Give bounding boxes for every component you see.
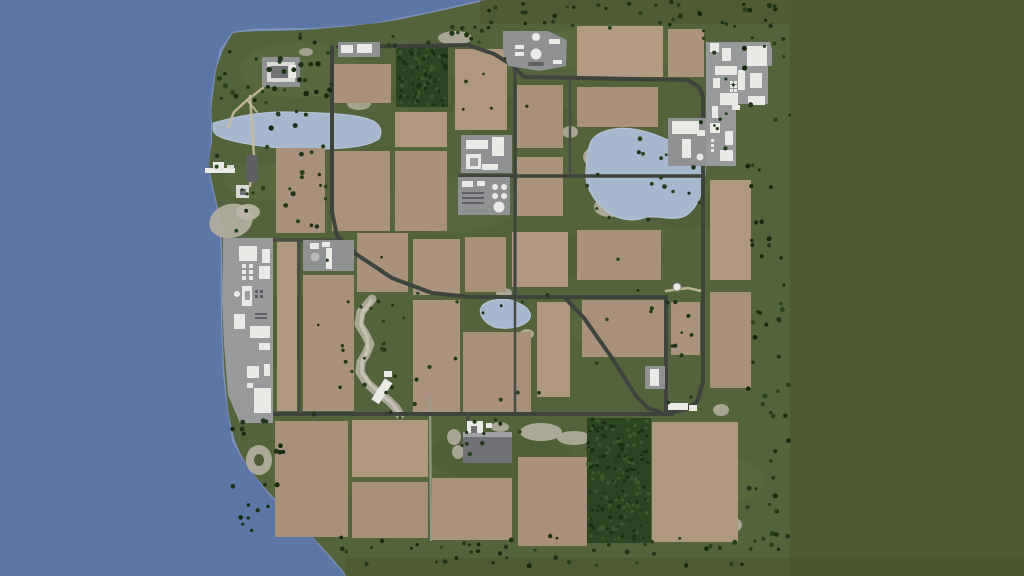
tree-icon	[760, 254, 764, 258]
tree-icon	[556, 537, 559, 540]
tree-icon	[498, 551, 502, 555]
tree-icon	[454, 357, 458, 361]
tree-icon	[775, 532, 779, 536]
tree-icon	[713, 124, 716, 127]
tree-icon	[324, 197, 327, 200]
forest-tree-icon	[433, 103, 436, 106]
forest-tree-icon	[625, 469, 629, 473]
forest-tree-icon	[635, 493, 638, 496]
forest-tree-icon	[621, 443, 624, 446]
field	[668, 29, 704, 77]
tree-icon	[315, 224, 319, 228]
forest-tree-icon	[639, 513, 641, 515]
forest-tree-icon	[598, 505, 600, 507]
tree-icon	[723, 146, 727, 150]
forest-tree-icon	[617, 537, 620, 540]
forest-tree-icon	[596, 419, 599, 422]
tree-icon	[761, 537, 765, 541]
tree-icon	[709, 544, 713, 548]
tree-icon	[344, 550, 348, 554]
tree-icon	[327, 87, 332, 92]
tree-icon	[283, 203, 288, 208]
industrial-b-tank	[492, 184, 498, 190]
tree-icon	[314, 90, 319, 95]
industrial-b-tank	[501, 184, 507, 190]
harbor-house	[262, 249, 270, 263]
tree-icon	[764, 323, 768, 327]
forest-tree-icon	[604, 427, 607, 430]
factory-shed	[549, 39, 560, 44]
tree-icon	[704, 546, 709, 551]
tree-icon	[595, 207, 598, 210]
tree-icon	[597, 3, 601, 7]
tree-icon	[719, 118, 722, 121]
forest-tree-icon	[636, 531, 639, 534]
field	[277, 239, 297, 411]
forest-tree-icon	[412, 83, 414, 85]
village-dot	[711, 139, 714, 142]
tree-icon	[753, 539, 756, 542]
tree-icon	[689, 395, 693, 399]
tree-icon	[494, 418, 497, 421]
tree-icon	[504, 545, 508, 549]
tree-icon	[732, 540, 737, 545]
tree-icon	[487, 26, 491, 30]
tree-icon	[551, 20, 554, 23]
tree-icon	[785, 534, 790, 539]
forest-tree-icon	[646, 420, 649, 423]
tree-icon	[272, 86, 277, 91]
harbor-dot	[249, 276, 253, 280]
tree-icon	[464, 80, 468, 84]
forest-tree-icon	[645, 426, 648, 429]
rock-outcrop	[236, 204, 260, 220]
field	[577, 87, 658, 127]
tree-icon	[234, 229, 238, 233]
tree-icon	[777, 355, 781, 359]
forest-tree-icon	[624, 515, 627, 518]
forest-tree-icon	[643, 537, 645, 539]
east-water-tank	[673, 283, 681, 291]
tree-icon	[469, 37, 473, 41]
tree-icon	[749, 547, 753, 551]
forest-tree-icon	[607, 446, 609, 448]
tree-icon	[415, 92, 418, 95]
tree-icon	[217, 76, 222, 81]
tree-icon	[697, 11, 701, 15]
tree-icon	[304, 113, 308, 117]
tree-icon	[669, 0, 673, 4]
field	[432, 478, 512, 540]
harbor-dot-dark	[255, 290, 258, 293]
forest-tree-icon	[610, 531, 613, 534]
tree-icon	[432, 80, 436, 84]
tree-icon	[770, 23, 773, 26]
forest-tree-icon	[401, 90, 403, 92]
tree-icon	[426, 41, 430, 45]
tree-icon	[498, 422, 502, 426]
tree-icon	[317, 324, 320, 327]
field	[352, 420, 428, 477]
forest-tree-icon	[600, 507, 604, 511]
village-dot	[730, 89, 733, 92]
tree-icon	[571, 24, 574, 27]
village-dot	[734, 89, 737, 92]
tree-icon	[295, 110, 298, 113]
tree-icon	[616, 258, 619, 261]
tree-icon	[250, 529, 253, 532]
tree-icon	[732, 83, 735, 86]
tree-icon	[344, 360, 348, 364]
tree-icon	[392, 35, 395, 38]
tree-icon	[687, 192, 690, 195]
tree-icon	[566, 6, 569, 9]
tree-icon	[288, 187, 291, 190]
tree-icon	[761, 402, 766, 407]
tree-icon	[783, 414, 787, 418]
forest-tree-icon	[397, 102, 399, 104]
harbor-dot-dark	[255, 295, 258, 298]
tree-icon	[468, 452, 472, 456]
center-barn	[650, 369, 659, 386]
forest-tree-icon	[608, 448, 611, 451]
forest-tree-icon	[601, 475, 603, 477]
tree-icon	[665, 153, 668, 156]
tree-icon	[473, 420, 477, 424]
tree-icon	[470, 550, 473, 553]
tree-icon	[637, 150, 641, 154]
tree-icon	[244, 209, 248, 213]
tree-icon	[468, 543, 471, 546]
tree-icon	[341, 344, 344, 347]
tree-icon	[750, 243, 754, 247]
tree-icon	[553, 14, 558, 19]
tree-icon	[303, 78, 307, 82]
tree-icon	[299, 152, 304, 157]
tree-icon	[500, 304, 503, 307]
tree-icon	[487, 9, 491, 13]
forest-tree-icon	[429, 68, 433, 72]
tree-icon	[769, 185, 773, 189]
tree-icon	[771, 476, 775, 480]
harbor-dot-dark	[260, 295, 263, 298]
forest-tree-icon	[626, 429, 629, 432]
tree-icon	[788, 114, 791, 117]
field	[577, 26, 663, 77]
forest-tree-icon	[630, 510, 634, 514]
forest-tree-icon	[623, 479, 626, 482]
tree-icon	[450, 25, 455, 30]
tree-icon	[751, 36, 754, 39]
forest-tree-icon	[399, 50, 402, 53]
tree-icon	[633, 534, 637, 538]
forest-tree-icon	[606, 466, 609, 469]
tree-icon	[362, 383, 367, 388]
tree-icon	[247, 516, 250, 519]
tree-icon	[240, 427, 245, 432]
field	[276, 148, 325, 233]
tree-icon	[678, 14, 682, 18]
tree-icon	[654, 4, 657, 7]
forest-tree-icon	[634, 478, 638, 482]
tree-icon	[427, 365, 431, 369]
forest-tree-icon	[443, 64, 446, 67]
tree-icon	[671, 190, 674, 193]
forest-tree-icon	[430, 49, 434, 53]
tree-icon	[678, 537, 681, 540]
tree-icon	[440, 99, 443, 102]
tree-icon	[365, 562, 369, 566]
forest-tree-icon	[400, 101, 403, 104]
forest-tree-icon	[632, 468, 635, 471]
tree-icon	[300, 175, 304, 179]
tree-icon	[595, 564, 598, 567]
forest-tree-icon	[618, 439, 621, 442]
tree-icon	[729, 562, 733, 566]
tree-icon	[413, 402, 417, 406]
forest-tree-icon	[402, 60, 405, 63]
forest-tree-icon	[417, 78, 419, 80]
tree-icon	[296, 219, 300, 223]
field	[332, 151, 390, 231]
forest-tree-icon	[617, 504, 621, 508]
tree-icon	[690, 333, 694, 337]
tree-icon	[275, 482, 280, 487]
tree-icon	[398, 416, 401, 419]
forest-tree-icon	[606, 481, 610, 485]
tree-icon	[718, 546, 722, 550]
tree-icon	[326, 259, 329, 262]
forest-tree-icon	[638, 431, 641, 434]
forest-tree-icon	[590, 525, 593, 528]
tree-icon	[482, 432, 485, 435]
tree-icon	[383, 342, 386, 345]
forest-tree-icon	[637, 505, 640, 508]
forest-tree-icon	[619, 515, 623, 519]
tree-icon	[702, 29, 705, 32]
tree-icon	[416, 292, 419, 295]
forest-northwest	[396, 47, 448, 107]
harbor-dot	[249, 270, 253, 274]
tree-icon	[461, 444, 464, 447]
tree-icon	[767, 3, 772, 8]
forest-tree-icon	[398, 56, 401, 59]
forest-tree-icon	[641, 455, 643, 457]
tree-icon	[266, 67, 272, 73]
tree-icon	[341, 349, 345, 353]
harbor-hall	[250, 326, 270, 338]
west-farm-shed	[322, 242, 330, 247]
forest-tree-icon	[626, 475, 630, 479]
forest-tree-icon	[633, 538, 635, 540]
village-house	[713, 78, 720, 88]
factory-shed	[515, 45, 524, 49]
forest-tree-icon	[425, 81, 428, 84]
tree-icon	[253, 98, 257, 102]
forest-tree-icon	[424, 73, 428, 77]
forest-tree-icon	[411, 71, 413, 73]
forest-tree-icon	[621, 534, 625, 538]
tree-icon	[241, 188, 244, 191]
tree-icon	[534, 549, 537, 552]
tree-icon	[716, 127, 719, 130]
roadside-shed	[689, 405, 697, 411]
forest-tree-icon	[422, 57, 426, 61]
forest-tree-icon	[601, 526, 605, 530]
tree-icon	[297, 77, 302, 82]
tree-icon	[347, 300, 350, 303]
forest-tree-icon	[614, 442, 616, 444]
tree-icon	[281, 69, 286, 74]
tree-icon	[454, 556, 458, 560]
factory-conveyor	[528, 62, 544, 66]
harbor-silo	[234, 291, 240, 297]
forest-tree-icon	[638, 486, 641, 489]
tree-icon	[298, 36, 302, 40]
forest-tree-icon	[591, 509, 594, 512]
tree-icon	[269, 125, 274, 130]
tree-icon	[779, 256, 783, 260]
forest-tree-icon	[418, 60, 421, 63]
tree-icon	[777, 548, 780, 551]
tree-icon	[370, 546, 373, 549]
forest-tree-icon	[596, 437, 599, 440]
tree-icon	[234, 94, 239, 99]
forest-tree-icon	[435, 87, 438, 90]
forest-tree-icon	[611, 428, 615, 432]
tree-icon	[476, 549, 480, 553]
tree-icon	[637, 289, 640, 292]
forest-tree-icon	[617, 455, 620, 458]
tree-icon	[387, 43, 391, 47]
pier-hut	[227, 165, 234, 169]
forest-tree-icon	[640, 458, 644, 462]
tree-icon	[261, 186, 266, 191]
tree-icon	[782, 283, 785, 286]
forest-tree-icon	[626, 417, 630, 421]
tree-icon	[763, 45, 766, 48]
tree-icon	[625, 549, 630, 554]
west-farm-silo	[311, 253, 320, 262]
rock-outcrop	[557, 431, 591, 445]
tree-icon	[773, 4, 777, 8]
village-dot	[711, 149, 714, 152]
tree-icon	[759, 311, 763, 315]
forest-tree-icon	[419, 68, 421, 70]
tree-icon	[220, 97, 223, 100]
forest-tree-icon	[606, 527, 609, 530]
tree-icon	[324, 185, 328, 189]
field	[710, 180, 751, 280]
tree-icon	[786, 438, 791, 443]
tree-icon	[659, 156, 663, 160]
forest-tree-icon	[426, 103, 429, 106]
tree-icon	[318, 173, 321, 176]
tree-icon	[382, 320, 385, 323]
forest-tree-icon	[632, 432, 636, 436]
tree-icon	[553, 555, 558, 560]
forest-tree-icon	[615, 499, 618, 502]
harbor-dot	[242, 264, 246, 268]
tree-icon	[747, 8, 752, 13]
forest-tree-icon	[633, 424, 637, 428]
field	[463, 332, 531, 414]
tree-icon	[223, 72, 226, 75]
tree-icon	[746, 505, 750, 509]
north-farm-shed	[341, 45, 353, 53]
tree-icon	[462, 108, 465, 111]
forest-tree-icon	[598, 443, 602, 447]
forest-tree-icon	[407, 96, 409, 98]
forest-tree-icon	[408, 101, 410, 103]
tree-icon	[754, 221, 758, 225]
tree-icon	[764, 19, 767, 22]
forest-tree-icon	[595, 491, 597, 493]
tree-icon	[389, 411, 392, 414]
tree-icon	[751, 360, 755, 364]
tree-icon	[291, 191, 296, 196]
field	[303, 275, 354, 411]
forest-tree-icon	[605, 451, 609, 455]
tree-icon	[742, 46, 747, 51]
tree-icon	[266, 85, 270, 89]
tree-icon	[754, 487, 757, 490]
harbor-house	[247, 366, 259, 378]
forest-tree-icon	[622, 471, 625, 474]
forest-tree-icon	[400, 80, 403, 83]
forest-tree-icon	[596, 464, 599, 467]
field	[413, 300, 460, 414]
tree-icon	[651, 540, 654, 543]
forest-tree-icon	[597, 427, 600, 430]
tree-icon	[781, 37, 785, 41]
forest-tree-icon	[608, 515, 612, 519]
tree-icon	[768, 503, 771, 506]
forest-tree-icon	[417, 99, 420, 102]
village-dot	[711, 144, 714, 147]
tree-icon	[242, 432, 246, 436]
tree-icon	[782, 55, 785, 58]
tree-icon	[465, 442, 469, 446]
forest-tree-icon	[403, 69, 405, 71]
forest-tree-icon	[610, 519, 612, 521]
forest-tree-icon	[591, 428, 593, 430]
tree-icon	[702, 37, 705, 40]
north-farm-barn	[357, 44, 372, 53]
tree-icon	[596, 173, 600, 177]
tree-icon	[545, 293, 549, 297]
tree-icon	[786, 382, 791, 387]
tree-icon	[338, 386, 342, 390]
forest-tree-icon	[613, 467, 616, 470]
forest-tree-icon	[640, 441, 643, 444]
forest-tree-icon	[617, 477, 620, 480]
tree-icon	[299, 33, 302, 36]
forest-tree-icon	[441, 61, 444, 64]
tree-icon	[659, 175, 663, 179]
forest-tree-icon	[610, 444, 612, 446]
tree-icon	[384, 391, 388, 395]
tree-icon	[256, 508, 260, 512]
forest-tree-icon	[422, 87, 424, 89]
rock-outcrop	[713, 404, 729, 416]
tree-icon	[312, 412, 316, 416]
forest-tree-icon	[617, 526, 619, 528]
tree-icon	[721, 21, 724, 24]
lake-farm-silo	[697, 154, 704, 161]
forest-tree-icon	[610, 511, 612, 513]
forest-tree-icon	[614, 538, 616, 540]
